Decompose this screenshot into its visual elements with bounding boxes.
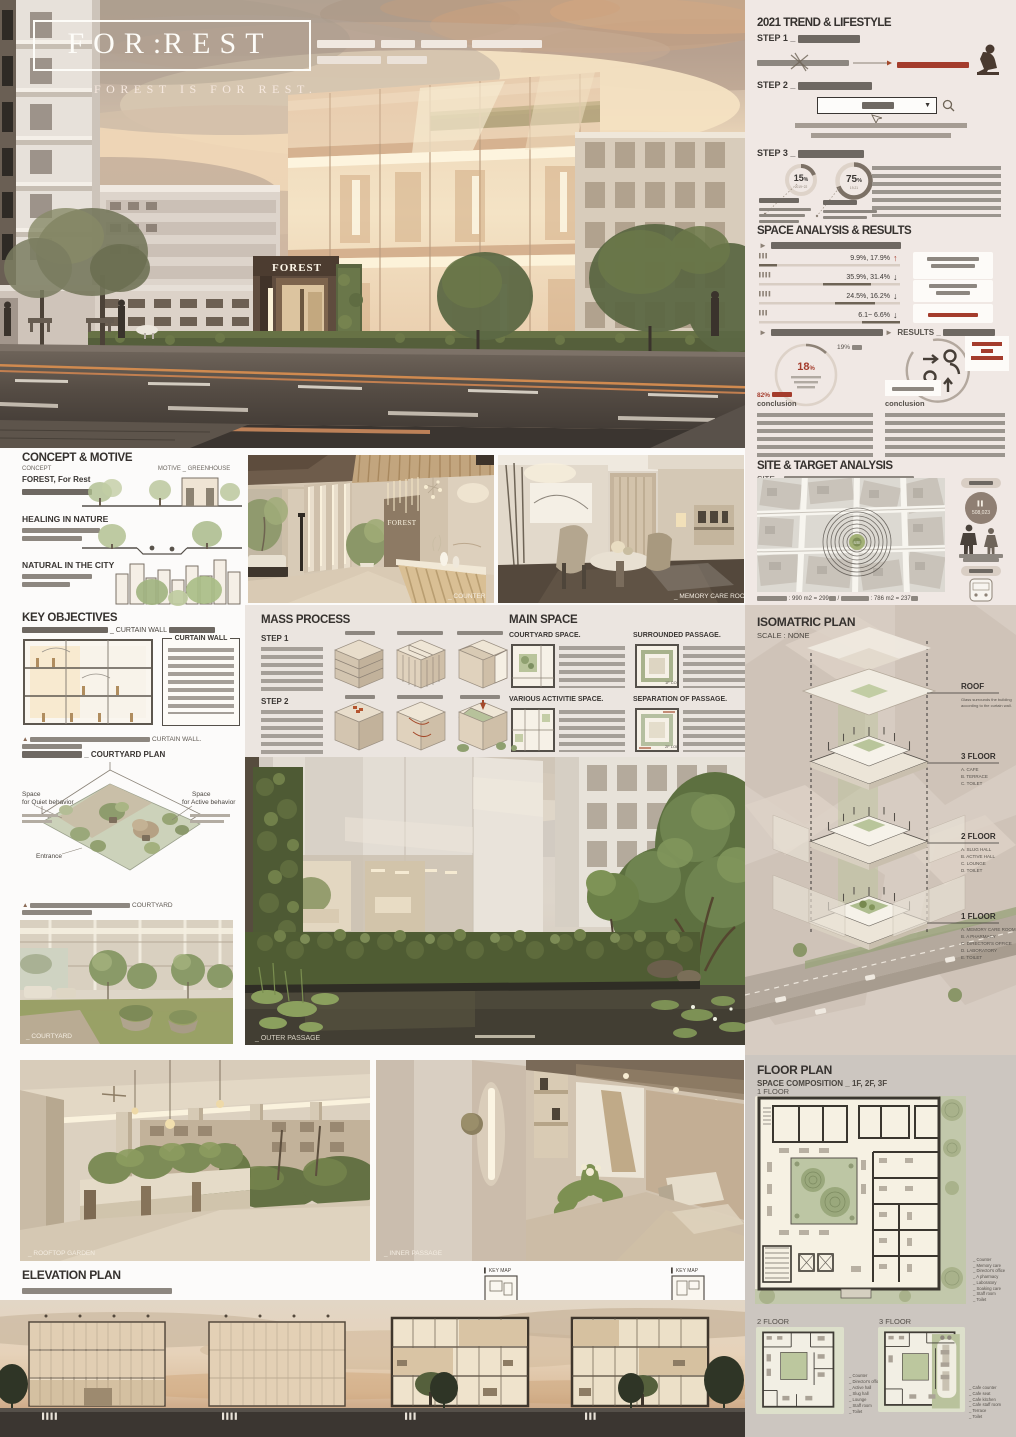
svg-text:▌▌▌▌: ▌▌▌▌	[222, 1412, 239, 1420]
svg-text:2F LOBBY: 2F LOBBY	[665, 744, 679, 749]
svg-text:A. CAFE: A. CAFE	[961, 767, 979, 772]
svg-text:▌▌▌▌: ▌▌▌▌	[759, 271, 772, 278]
svg-text:FOREST: FOREST	[272, 262, 322, 274]
svg-text:↓: ↓	[893, 310, 898, 320]
svg-text:▌▌▌: ▌▌▌	[585, 1412, 598, 1420]
svg-text:D. TOILET: D. TOILET	[961, 868, 983, 873]
svg-text:B. TERRACE: B. TERRACE	[961, 774, 988, 779]
svg-text:C. TOILET: C. TOILET	[961, 781, 983, 786]
svg-text:E. TOILET: E. TOILET	[961, 955, 982, 960]
svg-text:_ INNER PASSAGE: _ INNER PASSAGE	[383, 1250, 443, 1257]
svg-text:ROOF: ROOF	[961, 682, 984, 691]
svg-text:▌▌▌: ▌▌▌	[759, 309, 769, 316]
svg-text:B. A PHARMACY: B. A PHARMACY	[961, 934, 996, 939]
svg-text:▌▌▌▌: ▌▌▌▌	[42, 1412, 59, 1420]
svg-text:Space: Space	[192, 791, 211, 798]
svg-text:▌▌▌: ▌▌▌	[759, 252, 769, 259]
svg-text:▌▌▌: ▌▌▌	[405, 1412, 418, 1420]
svg-text:6.1~ 6.6%: 6.1~ 6.6%	[858, 312, 890, 319]
svg-text:for Active behavior: for Active behavior	[182, 799, 236, 806]
svg-text:1 FLOOR: 1 FLOOR	[961, 912, 996, 921]
svg-text:↓: ↓	[893, 291, 898, 301]
svg-text:35.9%, 31.4%: 35.9%, 31.4%	[846, 274, 890, 281]
svg-text:9.9%, 17.9%: 9.9%, 17.9%	[850, 255, 890, 262]
svg-text:Glass surrounds the building: Glass surrounds the building	[961, 697, 1012, 702]
svg-text:_ COUNTER: _ COUNTER	[447, 593, 486, 600]
svg-text:SITE: SITE	[853, 541, 860, 545]
svg-text:2 FLOOR: 2 FLOOR	[961, 832, 996, 841]
svg-text:24.5%, 16.2%: 24.5%, 16.2%	[846, 293, 890, 300]
svg-text:▌▌: ▌▌	[977, 500, 984, 507]
svg-text:C. LOUNGE: C. LOUNGE	[961, 861, 986, 866]
svg-text:B. ACTIVE HALL: B. ACTIVE HALL	[961, 854, 996, 859]
svg-text:3 FLOOR: 3 FLOOR	[961, 752, 996, 761]
svg-text:Entrance: Entrance	[36, 853, 62, 860]
svg-text:↓: ↓	[893, 272, 898, 282]
svg-text:FOREST: FOREST	[387, 519, 416, 527]
svg-text:▌▌▌▌: ▌▌▌▌	[759, 290, 772, 297]
svg-text:A. SLUG HALL: A. SLUG HALL	[961, 847, 992, 852]
svg-text:D. LABORATORY: D. LABORATORY	[961, 948, 997, 953]
svg-text:1F COUNTER: 1F COUNTER	[665, 680, 679, 685]
svg-text:according to the curtain wall.: according to the curtain wall.	[961, 703, 1012, 708]
svg-text:508,023: 508,023	[972, 510, 990, 516]
svg-text:Space: Space	[22, 791, 41, 798]
svg-text:_ COURTYARD: _ COURTYARD	[25, 1033, 72, 1040]
svg-text:18%: 18%	[797, 361, 815, 373]
svg-text:_ ROOFTOP GARDEN: _ ROOFTOP GARDEN	[27, 1250, 95, 1257]
svg-text:C. DIRECTOR'S OFFICE: C. DIRECTOR'S OFFICE	[961, 941, 1012, 946]
svg-text:A. MEMORY CARE ROOM: A. MEMORY CARE ROOM	[961, 927, 1016, 932]
svg-text:for Quiet behavior: for Quiet behavior	[22, 799, 75, 806]
svg-text:↑: ↑	[893, 253, 898, 263]
svg-text:_ OUTER PASSAGE: _ OUTER PASSAGE	[254, 1035, 321, 1042]
svg-text:_ MEMORY CARE ROOM: _ MEMORY CARE ROOM	[673, 593, 744, 600]
